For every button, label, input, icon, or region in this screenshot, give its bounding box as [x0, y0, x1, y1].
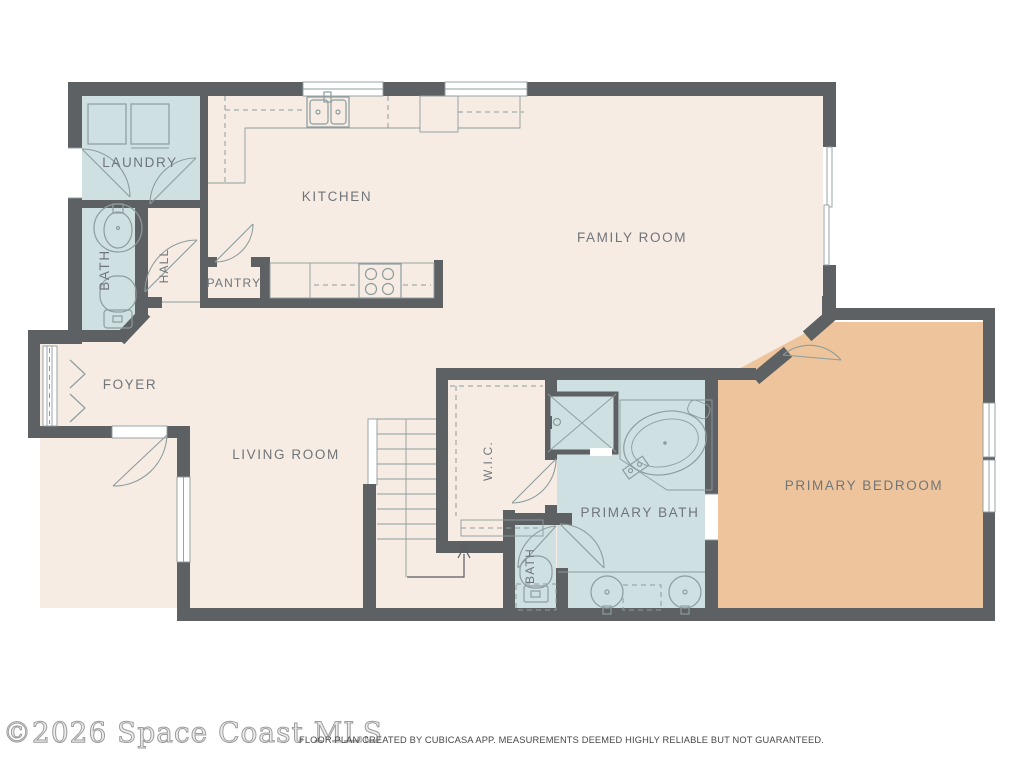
- window-kitchen: [303, 82, 383, 96]
- floor-plan-drawing: LAUNDRY KITCHEN FAMILY ROOM BATH HALL PA…: [0, 0, 1024, 768]
- laundry-exterior-door-opening: [68, 148, 82, 198]
- room-label-bath2: BATH: [523, 548, 537, 584]
- shower-head-icon: [545, 416, 552, 429]
- sliding-glass-door: [823, 147, 836, 265]
- room-label-pantry: PANTRY: [207, 276, 262, 290]
- floor-foyer-living: [40, 330, 377, 608]
- room-label-hall: HALL: [157, 249, 171, 284]
- room-label-laundry: LAUNDRY: [102, 155, 177, 170]
- shower: [545, 394, 616, 456]
- floor-primary-bedroom: [718, 322, 983, 608]
- window-living-room: [177, 477, 190, 562]
- front-door-panel: [112, 426, 167, 438]
- window-primary-bedroom-2: [983, 460, 995, 512]
- window-family-room: [445, 82, 527, 96]
- room-label-bath: BATH: [97, 249, 112, 290]
- room-label-primary-bedroom: PRIMARY BEDROOM: [785, 478, 944, 493]
- stair-handrail: [368, 419, 377, 485]
- floor-plan-page: LAUNDRY KITCHEN FAMILY ROOM BATH HALL PA…: [0, 0, 1024, 768]
- bedroom-bath-opening: [705, 494, 718, 540]
- room-label-wic: W.I.C.: [481, 441, 495, 481]
- room-label-family-room: FAMILY ROOM: [577, 230, 687, 245]
- room-label-foyer: FOYER: [103, 377, 158, 392]
- room-label-living-room: LIVING ROOM: [232, 447, 340, 462]
- window-primary-bedroom-1: [983, 403, 995, 457]
- room-label-kitchen: KITCHEN: [302, 189, 372, 204]
- cubicasa-disclaimer: FLOOR PLAN CREATED BY CUBICASA APP. MEAS…: [299, 735, 824, 745]
- room-label-primary-bath: PRIMARY BATH: [581, 505, 700, 520]
